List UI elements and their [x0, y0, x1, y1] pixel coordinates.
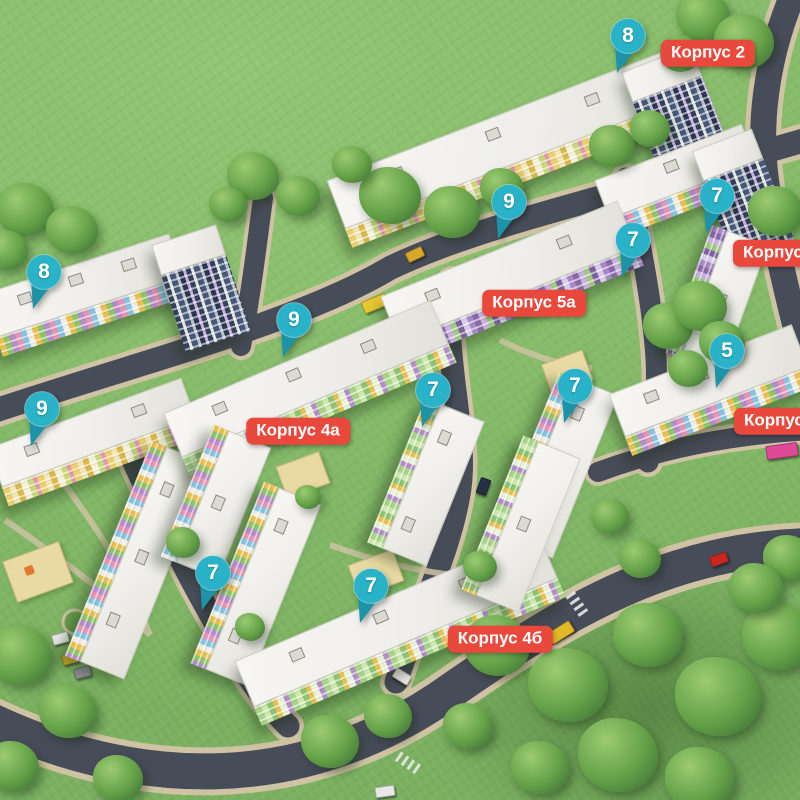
tree	[748, 186, 800, 237]
tree	[93, 755, 143, 800]
map-pin-9[interactable]: 9	[20, 389, 64, 451]
pin-head-icon	[416, 373, 451, 408]
pin-head-icon	[611, 19, 646, 54]
building-label-korpus-2[interactable]: Корпус 2	[661, 40, 755, 67]
tree	[209, 187, 247, 222]
tree	[619, 539, 661, 578]
map-pin-9[interactable]: 9	[487, 182, 531, 244]
pin-head-icon	[558, 369, 593, 404]
map-pin-8[interactable]: 8	[606, 16, 650, 78]
tree	[46, 206, 98, 254]
tree	[511, 741, 569, 794]
map-pin-7[interactable]: 7	[553, 366, 597, 428]
pin-head-icon	[616, 223, 651, 258]
map-pin-7[interactable]: 7	[611, 220, 655, 282]
map-pin-7[interactable]: 7	[411, 370, 455, 432]
tree	[463, 551, 497, 582]
tree	[668, 350, 708, 387]
map-pin-5[interactable]: 5	[705, 331, 749, 393]
tree	[295, 485, 321, 509]
building-label-korpus-5[interactable]: Корпус 5	[734, 408, 800, 435]
tree	[39, 685, 97, 738]
tree	[276, 176, 320, 216]
tree	[332, 146, 372, 183]
tree	[364, 694, 412, 738]
tree	[424, 186, 480, 238]
tree	[729, 563, 783, 613]
map-pin-7[interactable]: 7	[191, 553, 235, 615]
pin-head-icon	[277, 303, 312, 338]
tree	[443, 703, 493, 749]
pin-head-icon	[710, 334, 745, 369]
tree	[675, 657, 761, 736]
pin-head-icon	[492, 185, 527, 220]
site-plan-map: 8 7 9 7 8 9 5	[0, 0, 800, 800]
tree	[301, 715, 359, 768]
map-pin-8[interactable]: 8	[22, 252, 66, 314]
tree	[591, 499, 629, 534]
map-pin-9[interactable]: 9	[272, 300, 316, 362]
building-label-korpus-4b[interactable]: Корпус 4б	[448, 626, 553, 653]
tree	[589, 125, 635, 167]
pin-head-icon	[700, 179, 735, 214]
map-pin-7[interactable]: 7	[695, 176, 739, 238]
tree	[630, 110, 670, 147]
tree	[235, 613, 265, 641]
tree	[578, 718, 658, 792]
pin-head-icon	[354, 569, 389, 604]
building-label-korpus-5a[interactable]: Корпус 5а	[482, 290, 586, 317]
tree	[613, 603, 683, 667]
map-pin-7[interactable]: 7	[349, 566, 393, 628]
pin-head-icon	[25, 392, 60, 427]
playground-toy	[24, 564, 36, 576]
pin-head-icon	[27, 255, 62, 290]
building-label-korpus-6[interactable]: Корпус 6	[733, 240, 800, 267]
tree	[528, 648, 608, 722]
pin-head-icon	[196, 556, 231, 591]
building-label-korpus-4a[interactable]: Корпус 4а	[246, 418, 350, 445]
